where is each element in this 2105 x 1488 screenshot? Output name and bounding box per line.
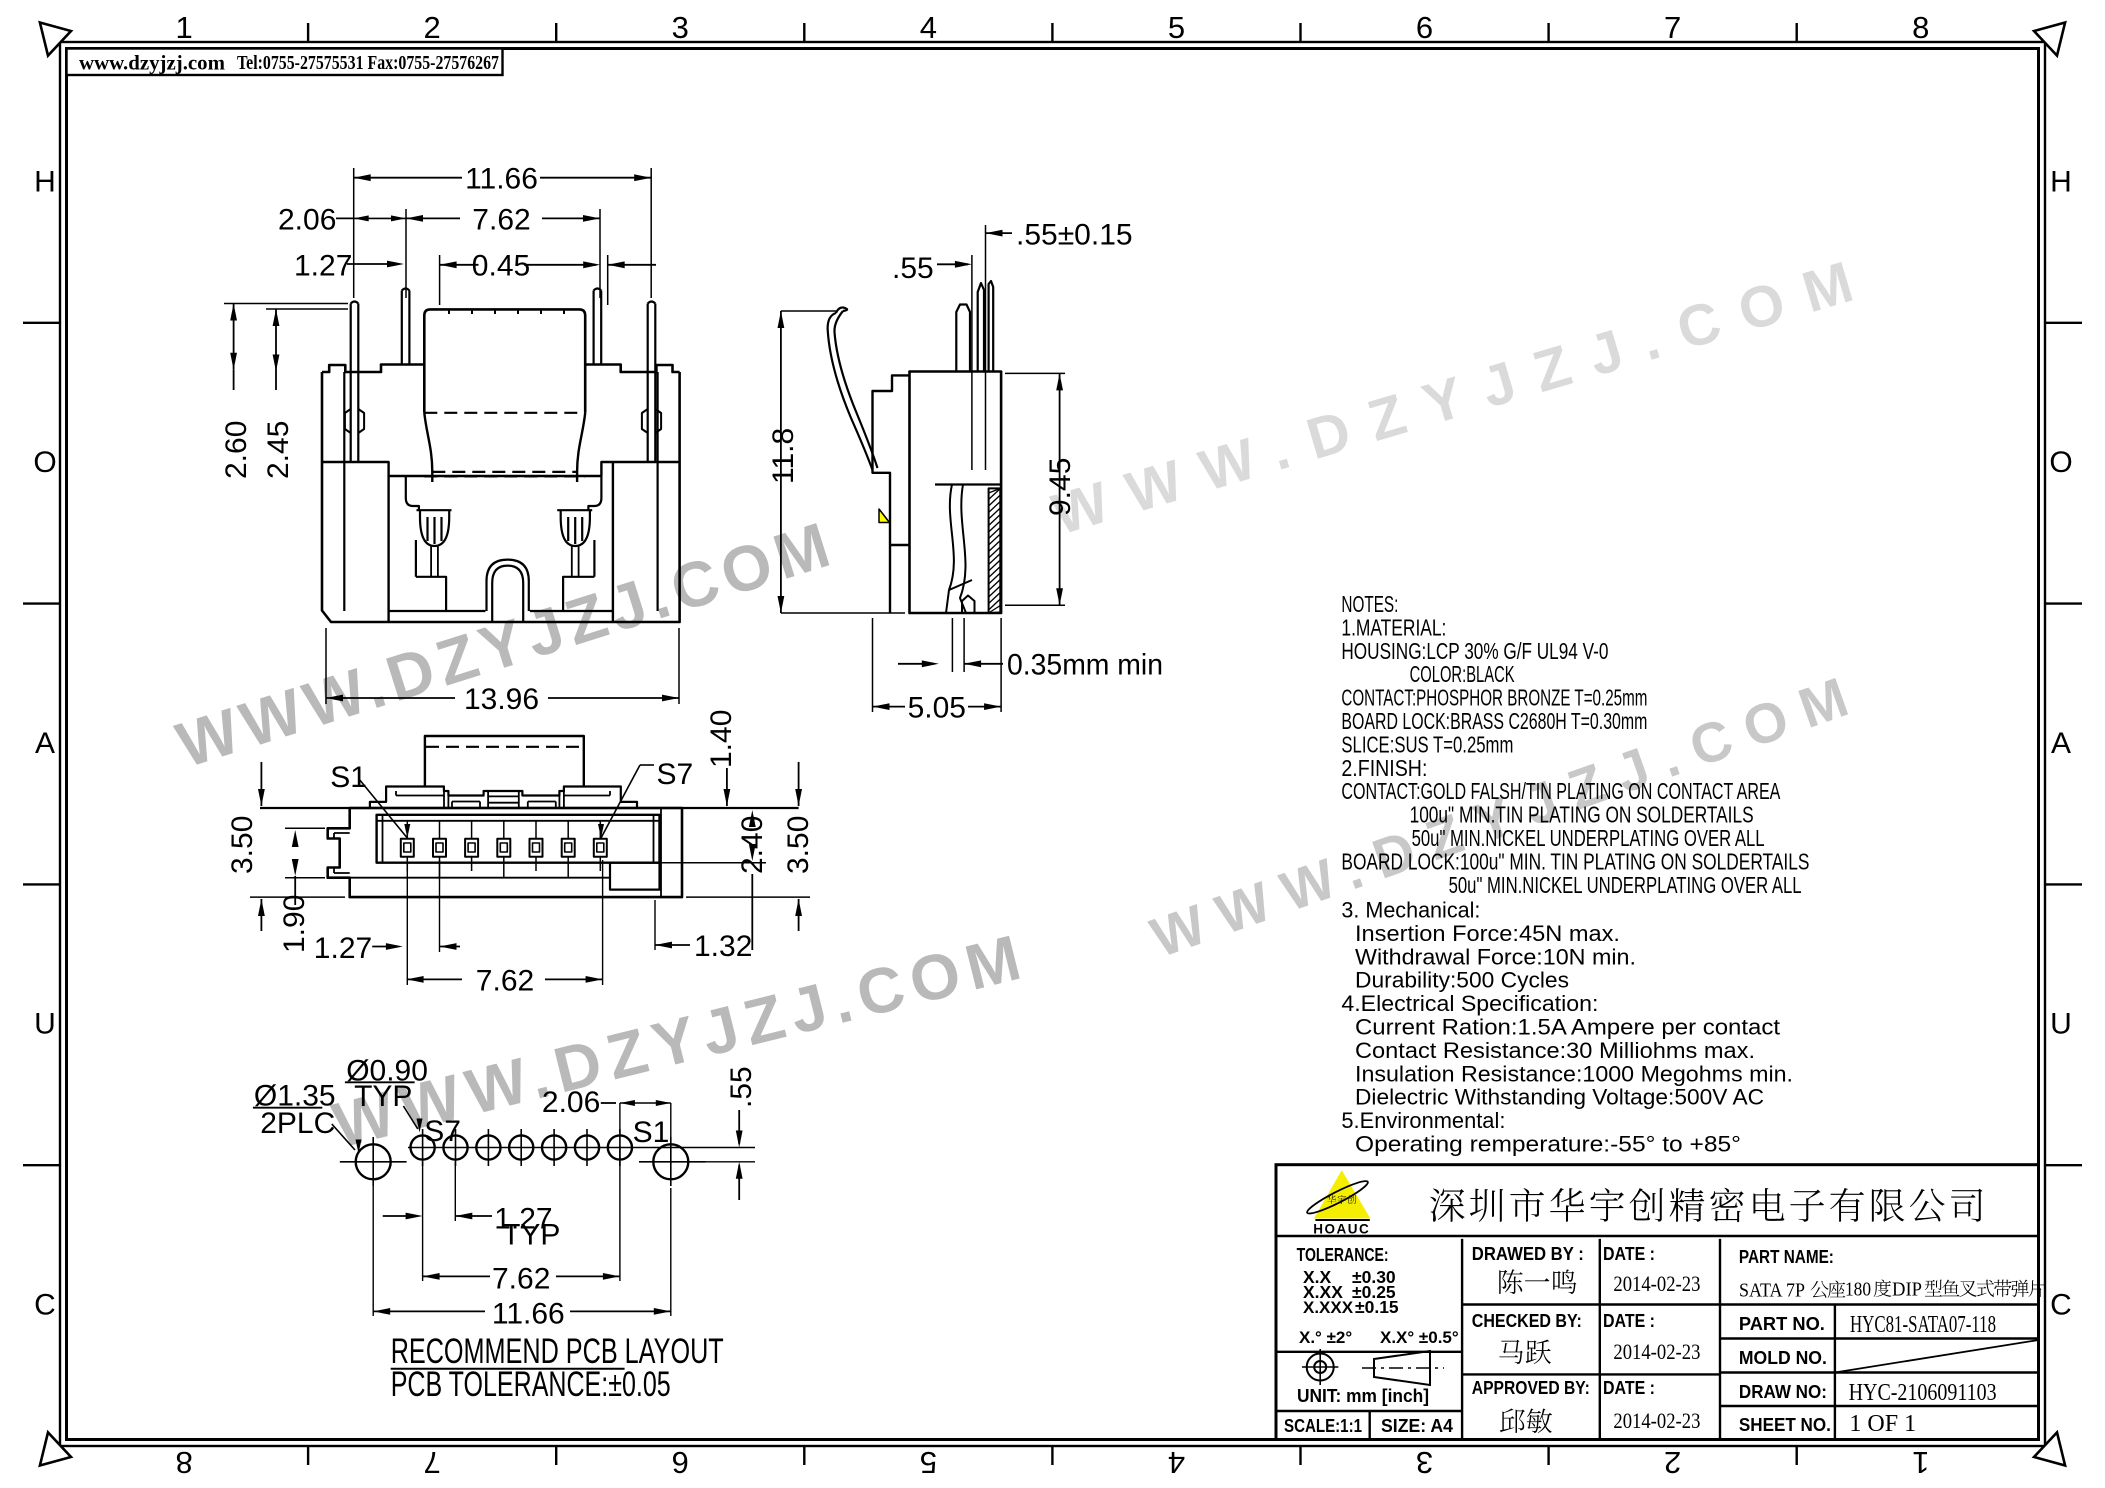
svg-text:X.° ±2°: X.° ±2° xyxy=(1299,1328,1352,1347)
svg-text:SCALE:1:1: SCALE:1:1 xyxy=(1284,1415,1362,1436)
svg-text:CONTACT:GOLD FALSH/TIN PLATING: CONTACT:GOLD FALSH/TIN PLATING ON CONTAC… xyxy=(1341,778,1780,804)
svg-text:Insulation Resistance:1000 M: Insulation Resistance:1000 Megohms min. xyxy=(1355,1061,1793,1086)
svg-text:13.96: 13.96 xyxy=(464,683,539,716)
svg-text:6: 6 xyxy=(1416,10,1433,45)
svg-text:9.45: 9.45 xyxy=(1044,458,1077,516)
svg-text:COLOR:BLACK: COLOR:BLACK xyxy=(1410,661,1515,687)
svg-text:X.X° ±0.5°: X.X° ±0.5° xyxy=(1380,1328,1459,1347)
svg-text:5.Environmental:: 5.Environmental: xyxy=(1341,1108,1505,1133)
svg-text:NOTES:: NOTES: xyxy=(1341,591,1398,617)
svg-text:APPROVED BY:: APPROVED BY: xyxy=(1472,1377,1590,1398)
svg-text:www.dzyjzj.com: www.dzyjzj.com xyxy=(79,51,225,75)
svg-text:1: 1 xyxy=(1912,1445,1929,1480)
svg-text:S7: S7 xyxy=(424,1115,461,1148)
svg-text:UNIT: mm [inch]: UNIT: mm [inch] xyxy=(1297,1385,1429,1406)
svg-text:1 OF 1: 1 OF 1 xyxy=(1849,1411,1916,1437)
svg-text:1.32: 1.32 xyxy=(694,930,752,963)
svg-text:H: H xyxy=(34,165,56,198)
svg-text:11.66: 11.66 xyxy=(492,1298,565,1331)
svg-text:HOAUC: HOAUC xyxy=(1313,1222,1370,1237)
svg-text:1.40: 1.40 xyxy=(705,710,738,768)
svg-text:2.06: 2.06 xyxy=(542,1086,600,1119)
svg-text:0.45: 0.45 xyxy=(472,250,530,283)
svg-text:5: 5 xyxy=(920,1445,937,1480)
svg-text:2.FINISH:: 2.FINISH: xyxy=(1341,755,1427,781)
svg-text:50u" MIN.NICKEL UNDERPLATING O: 50u" MIN.NICKEL UNDERPLATING OVER ALL xyxy=(1412,825,1765,851)
svg-text:1.27: 1.27 xyxy=(294,250,352,283)
svg-text:100u" MIN.TIN PLATING ON SOLDE: 100u" MIN.TIN PLATING ON SOLDERTAILS xyxy=(1410,802,1754,828)
svg-text:8: 8 xyxy=(1912,10,1929,45)
svg-text:Dielectric Withstanding Volt: Dielectric Withstanding Voltage:500V AC xyxy=(1355,1085,1764,1110)
svg-text:SIZE: A4: SIZE: A4 xyxy=(1381,1415,1454,1436)
svg-text:11.66: 11.66 xyxy=(465,163,538,196)
svg-text:.55±0.15: .55±0.15 xyxy=(1016,219,1133,252)
svg-text:HYC81-SATA07-118: HYC81-SATA07-118 xyxy=(1850,1312,1996,1338)
svg-text:2.60: 2.60 xyxy=(220,421,253,479)
svg-text:3.50: 3.50 xyxy=(226,816,259,874)
svg-text:Insertion Force:45N max.: Insertion Force:45N max. xyxy=(1355,921,1620,946)
svg-text:H: H xyxy=(2050,165,2072,198)
svg-text:3: 3 xyxy=(672,10,689,45)
svg-text:S7: S7 xyxy=(657,758,694,791)
svg-text:O: O xyxy=(33,446,56,479)
svg-text:7.62: 7.62 xyxy=(492,1263,550,1296)
svg-text:BOARD LOCK:BRASS C2680H T=0.30: BOARD LOCK:BRASS C2680H T=0.30mm xyxy=(1341,708,1647,734)
svg-text:Withdrawal Force:10N min.: Withdrawal Force:10N min. xyxy=(1355,944,1636,969)
svg-text:A: A xyxy=(35,727,55,760)
svg-text:1.27: 1.27 xyxy=(314,932,372,965)
svg-text:2.45: 2.45 xyxy=(262,421,295,479)
svg-text:2: 2 xyxy=(1664,1445,1681,1480)
svg-text:11.8: 11.8 xyxy=(767,428,800,484)
svg-text:8: 8 xyxy=(175,1445,192,1480)
svg-text:SATA 7P: SATA 7P xyxy=(1739,1280,1805,1302)
svg-text:S1: S1 xyxy=(633,1116,670,1149)
svg-text:7: 7 xyxy=(423,1445,440,1480)
svg-text:DATE :: DATE : xyxy=(1603,1310,1655,1331)
svg-text:6: 6 xyxy=(672,1445,689,1480)
svg-text:Operating remperature:-55° t: Operating remperature:-55° to +85° xyxy=(1355,1132,1741,1157)
svg-text:7.62: 7.62 xyxy=(472,204,530,237)
svg-text:3: 3 xyxy=(1416,1445,1433,1480)
svg-text:Durability:500 Cycles: Durability:500 Cycles xyxy=(1355,968,1569,993)
svg-text:4: 4 xyxy=(920,10,937,45)
svg-text:2014-02-23: 2014-02-23 xyxy=(1613,1408,1700,1433)
svg-text:Tel:0755-27575531 Fax:0755-27: Tel:0755-27575531 Fax:0755-27576267 xyxy=(237,53,499,74)
svg-text:2: 2 xyxy=(423,10,440,45)
svg-text:HOUSING:LCP 30% G/F UL94 V-0: HOUSING:LCP 30% G/F UL94 V-0 xyxy=(1341,638,1608,664)
svg-text:CONTACT:PHOSPHOR BRONZE T=0.25: CONTACT:PHOSPHOR BRONZE T=0.25mm xyxy=(1341,685,1647,711)
svg-text:PART NO.: PART NO. xyxy=(1739,1313,1825,1334)
svg-text:3.50: 3.50 xyxy=(782,816,815,874)
svg-text:4: 4 xyxy=(1168,1445,1185,1480)
svg-text:C: C xyxy=(34,1289,56,1322)
svg-text:SHEET NO.: SHEET NO. xyxy=(1739,1414,1831,1435)
svg-text:.55: .55 xyxy=(892,252,934,285)
svg-text:DRAW NO:: DRAW NO: xyxy=(1739,1381,1827,1402)
svg-text:HYC-2106091103: HYC-2106091103 xyxy=(1849,1380,1997,1406)
svg-text:SLICE:SUS T=0.25mm: SLICE:SUS T=0.25mm xyxy=(1341,731,1513,757)
svg-text:2PLC: 2PLC xyxy=(260,1107,335,1140)
svg-text:4.Electrical Specification:: 4.Electrical Specification: xyxy=(1341,991,1598,1016)
svg-text:.55: .55 xyxy=(725,1066,758,1108)
svg-text:2014-02-23: 2014-02-23 xyxy=(1613,1339,1700,1364)
svg-text:2014-02-23: 2014-02-23 xyxy=(1613,1271,1700,1296)
svg-text:DRAWED BY :: DRAWED BY : xyxy=(1472,1243,1584,1264)
svg-text:Contact Resistance:30 Millio: Contact Resistance:30 Milliohms max. xyxy=(1355,1038,1755,1063)
svg-text:PCB TOLERANCE:±0.05: PCB TOLERANCE:±0.05 xyxy=(391,1365,671,1404)
svg-text:7: 7 xyxy=(1664,10,1681,45)
svg-text:50u" MIN.NICKEL UNDERPLATING O: 50u" MIN.NICKEL UNDERPLATING OVER ALL xyxy=(1449,872,1802,898)
svg-text:A: A xyxy=(2051,727,2071,760)
svg-text:Current Ration:1.5A Ampere: Current Ration:1.5A Ampere per contact xyxy=(1355,1015,1781,1040)
svg-text:U: U xyxy=(2050,1008,2072,1041)
svg-text:O: O xyxy=(2049,446,2072,479)
svg-text:5: 5 xyxy=(1168,10,1185,45)
svg-text:MOLD NO.: MOLD NO. xyxy=(1739,1347,1827,1368)
svg-text:BOARD LOCK:100u" MIN. TIN PLA: BOARD LOCK:100u" MIN. TIN PLATING ON SOL… xyxy=(1341,848,1809,874)
svg-text:PART NAME:: PART NAME: xyxy=(1739,1246,1834,1267)
svg-text:180: 180 xyxy=(1845,1279,1871,1301)
svg-text:1: 1 xyxy=(175,10,192,45)
svg-text:CHECKED BY:: CHECKED BY: xyxy=(1472,1310,1582,1331)
svg-text:1.MATERIAL:: 1.MATERIAL: xyxy=(1341,614,1446,640)
svg-text:7.62: 7.62 xyxy=(476,965,534,998)
svg-text:X.XXX: X.XXX xyxy=(1303,1298,1354,1317)
svg-text:5.05: 5.05 xyxy=(908,692,966,725)
svg-text:U: U xyxy=(34,1008,56,1041)
svg-text:DATE :: DATE : xyxy=(1603,1377,1655,1398)
svg-text:±0.15: ±0.15 xyxy=(1355,1297,1399,1317)
svg-text:TYP: TYP xyxy=(502,1218,560,1251)
svg-text:3. Mechanical:: 3. Mechanical: xyxy=(1341,898,1480,923)
svg-text:DATE :: DATE : xyxy=(1603,1243,1655,1264)
svg-text:2.06: 2.06 xyxy=(278,204,336,237)
svg-text:S1: S1 xyxy=(330,761,367,794)
svg-text:C: C xyxy=(2050,1289,2072,1322)
svg-text:0.35mm min: 0.35mm min xyxy=(1007,649,1163,682)
svg-text:DIP: DIP xyxy=(1892,1279,1922,1301)
svg-text:TOLERANCE:: TOLERANCE: xyxy=(1297,1244,1389,1265)
